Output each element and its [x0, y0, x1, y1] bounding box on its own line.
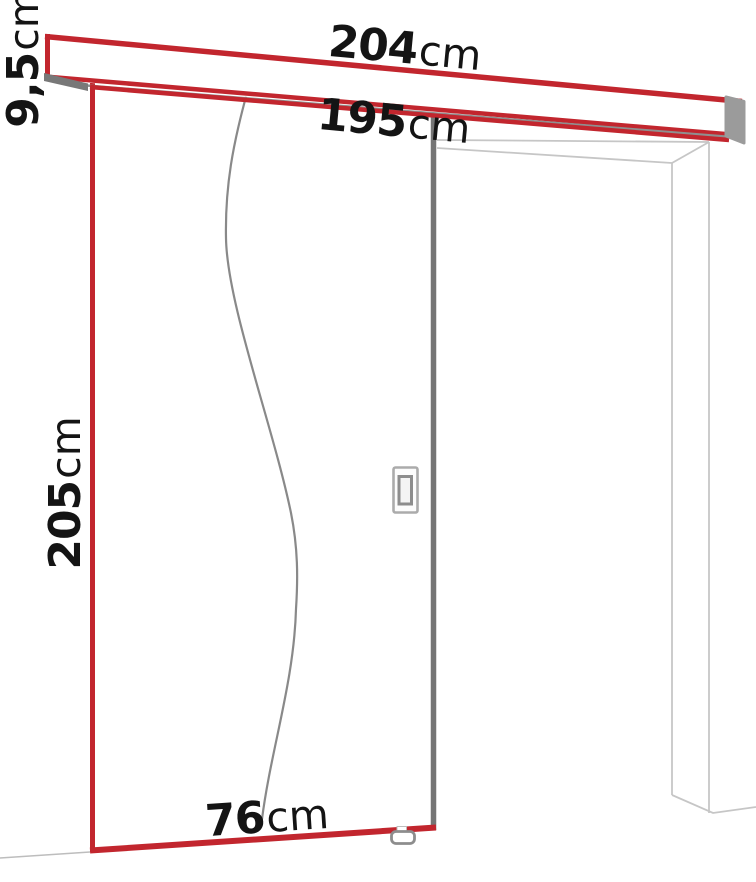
- dimension-unit: cm: [46, 416, 87, 478]
- floor-line-left: [0, 852, 90, 858]
- door-width-label: 76 cm: [206, 792, 329, 844]
- handle-inner: [399, 477, 412, 505]
- diagram-canvas: 9,5 cm 204 cm 195 cm 205 cm 76 cm: [0, 0, 756, 882]
- rail-end-cap: [726, 97, 744, 143]
- frame-foot: [672, 795, 756, 813]
- dimension-unit: cm: [406, 103, 472, 150]
- door-panel: [90, 83, 436, 853]
- dimension-value: 204: [327, 20, 420, 72]
- dimension-value: 76: [204, 796, 266, 844]
- door-handle: [394, 468, 418, 513]
- floor-guide-clip: [392, 832, 415, 844]
- dimension-value: 205: [44, 481, 88, 570]
- dimension-unit: cm: [4, 0, 45, 51]
- door-frame: [437, 140, 756, 813]
- dimension-value: 195: [316, 93, 409, 145]
- frame-lintel-back-edge: [437, 140, 709, 142]
- rail-height-label: 9,5 cm: [2, 0, 46, 128]
- dimension-unit: cm: [417, 30, 483, 77]
- door-height-label: 205 cm: [44, 423, 88, 563]
- frame-lintel-corner: [672, 142, 709, 163]
- dimension-value: 9,5: [2, 53, 46, 128]
- dimension-unit: cm: [265, 794, 330, 839]
- door-surface: [90, 83, 436, 853]
